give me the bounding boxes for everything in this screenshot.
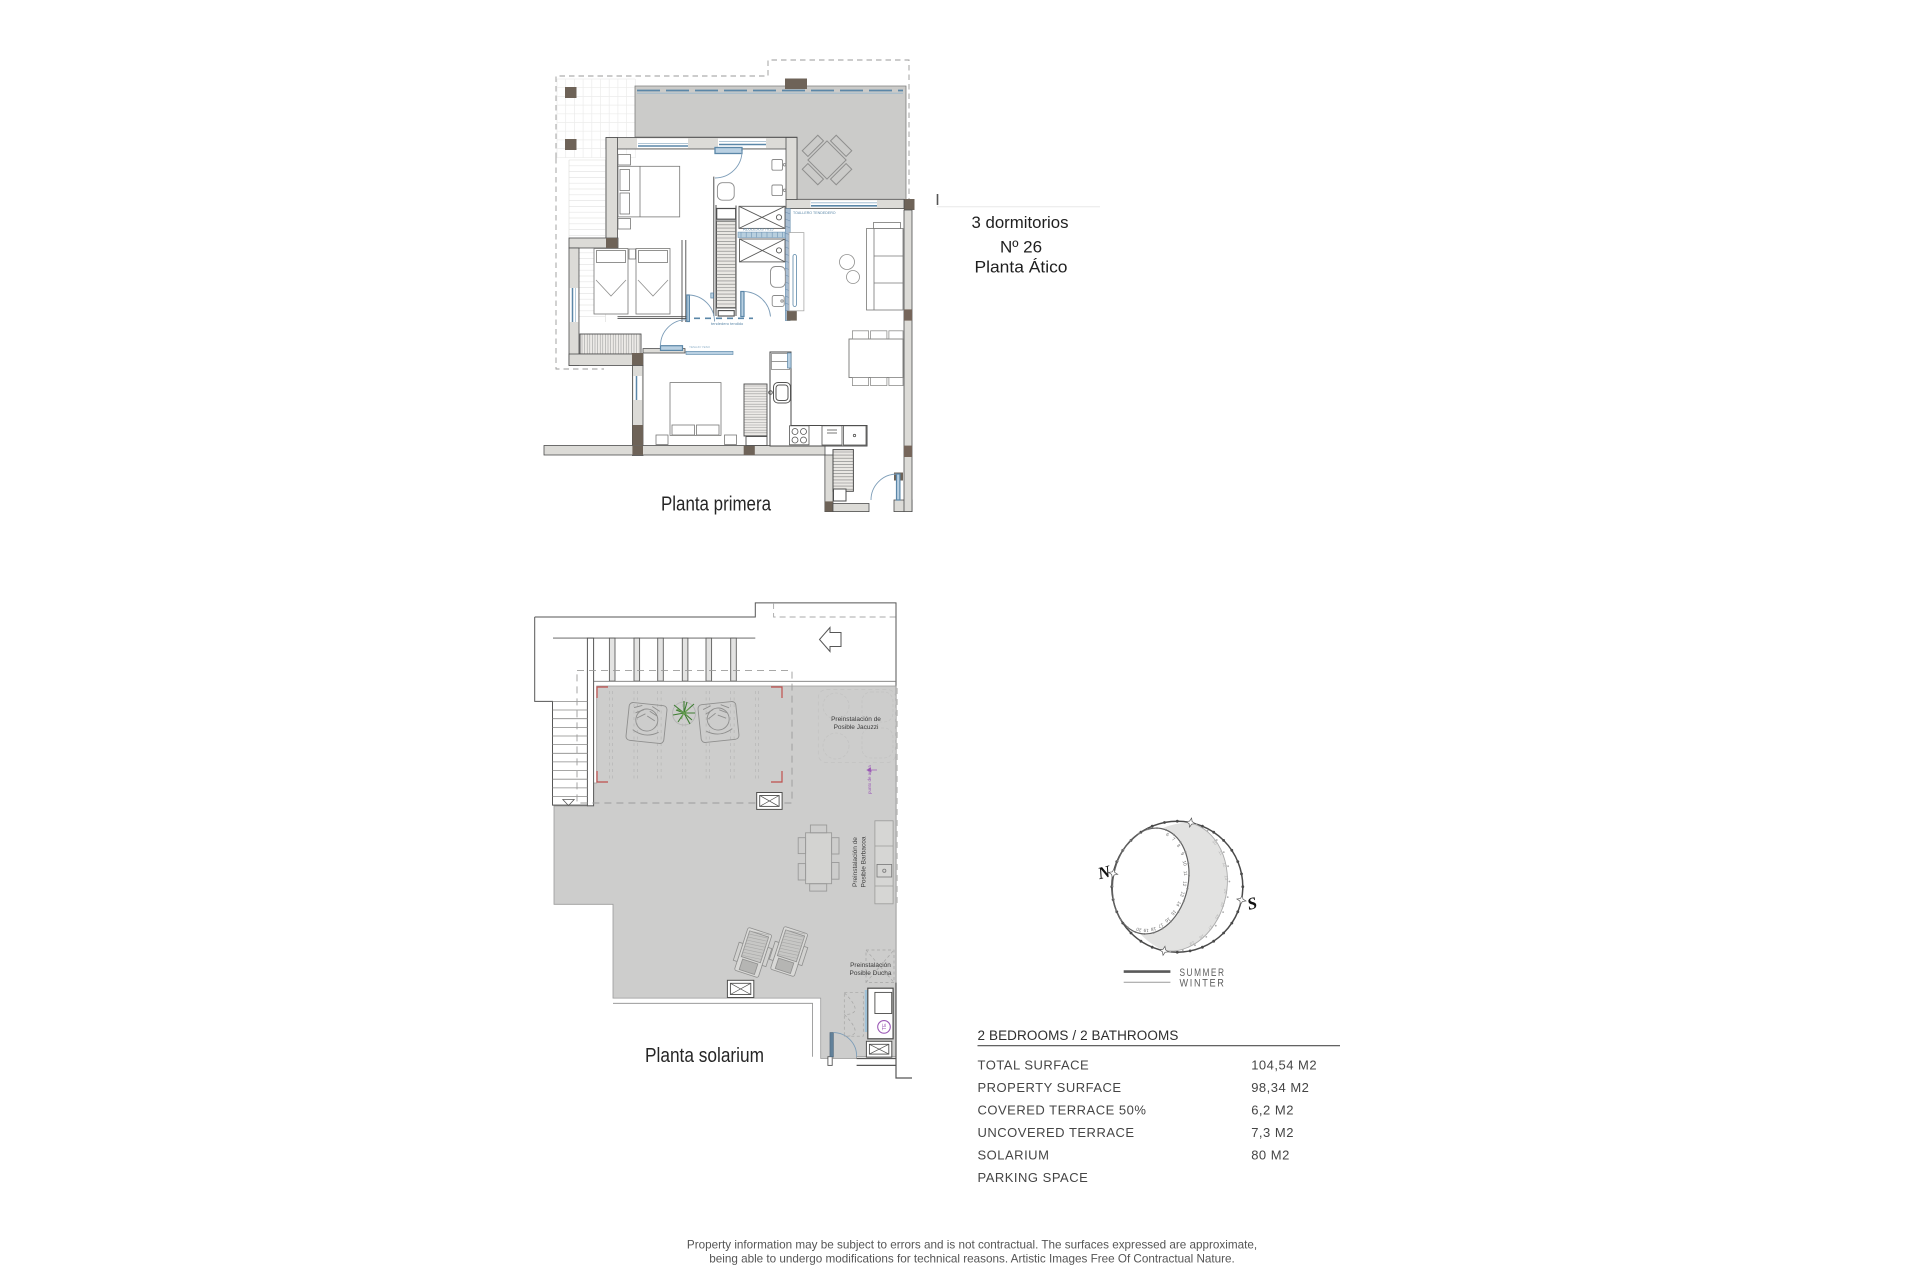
svg-text:Preinstalación de: Preinstalación de	[852, 837, 859, 887]
svg-text:TE: TE	[882, 1023, 888, 1030]
svg-text:tendedero tendido: tendedero tendido	[711, 321, 744, 326]
svg-text:COVERED TERRACE 50%: COVERED TERRACE 50%	[978, 1103, 1147, 1118]
svg-text:11: 11	[1183, 871, 1188, 877]
svg-text:Property information may be su: Property information may be subject to e…	[687, 1239, 1257, 1252]
svg-text:Planta Ático: Planta Ático	[975, 257, 1068, 276]
svg-text:Planta primera: Planta primera	[661, 494, 772, 516]
svg-text:13: 13	[1224, 875, 1230, 881]
svg-text:AZULEJOS 7x15: AZULEJOS 7x15	[743, 227, 774, 232]
svg-text:TOALLERO TENDEDERO: TOALLERO TENDEDERO	[793, 211, 836, 215]
svg-text:Posible Jacuzzi: Posible Jacuzzi	[834, 724, 879, 731]
svg-text:punto de agua: punto de agua	[867, 765, 872, 794]
svg-text:YESAJO YESO: YESAJO YESO	[689, 345, 711, 349]
svg-text:2 BEDROOMS / 2 BATHROOMS: 2 BEDROOMS / 2 BATHROOMS	[978, 1028, 1179, 1043]
svg-text:3 dormitorios: 3 dormitorios	[972, 213, 1069, 232]
svg-text:Preinstalación: Preinstalación	[850, 962, 891, 969]
svg-text:104,54 M2: 104,54 M2	[1251, 1058, 1317, 1073]
svg-text:98,34 M2: 98,34 M2	[1251, 1080, 1309, 1095]
svg-text:80 M2: 80 M2	[1251, 1148, 1290, 1163]
svg-text:being able to undergo modifica: being able to undergo modifications for …	[709, 1253, 1235, 1266]
svg-text:Planta solarium: Planta solarium	[645, 1045, 764, 1067]
svg-text:SOLARIUM: SOLARIUM	[978, 1148, 1050, 1163]
svg-text:Posible Barbacoa: Posible Barbacoa	[861, 836, 868, 887]
svg-text:19: 19	[1143, 928, 1149, 933]
svg-text:UNCOVERED TERRACE: UNCOVERED TERRACE	[978, 1125, 1135, 1140]
svg-text:WINTER: WINTER	[1180, 977, 1226, 989]
svg-text:7,3 M2: 7,3 M2	[1251, 1125, 1294, 1140]
svg-text:6,2 M2: 6,2 M2	[1251, 1103, 1294, 1118]
svg-text:PARKING SPACE: PARKING SPACE	[978, 1170, 1089, 1185]
svg-text:Preinstalación de: Preinstalación de	[831, 716, 881, 723]
svg-text:TOTAL SURFACE: TOTAL SURFACE	[978, 1058, 1090, 1073]
svg-text:Nº 26: Nº 26	[1000, 237, 1042, 256]
svg-text:PROPERTY SURFACE: PROPERTY SURFACE	[978, 1080, 1122, 1095]
svg-text:Posible Ducha: Posible Ducha	[850, 970, 892, 977]
